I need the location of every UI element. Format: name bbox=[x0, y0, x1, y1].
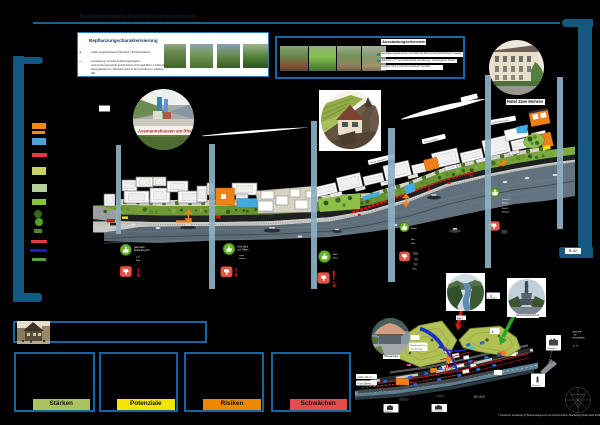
svg-text:Wanderweg Tief.: Wanderweg Tief. bbox=[410, 344, 427, 347]
svg-text:Burg: Burg bbox=[333, 256, 338, 259]
svg-text:Fund (Brett) →: Fund (Brett) → bbox=[358, 382, 376, 386]
svg-text:Loreleyblick: Loreleyblick bbox=[487, 297, 497, 300]
svg-text:· IM ·: · IM · bbox=[573, 335, 578, 337]
svg-text:BH 600: BH 600 bbox=[474, 395, 485, 399]
svg-text:Bingen: Bingen bbox=[502, 202, 510, 204]
svg-text:Pkw: Pkw bbox=[136, 260, 141, 262]
svg-text:Bahnhof: Bahnhof bbox=[385, 411, 393, 413]
svg-text:Halt: Halt bbox=[411, 242, 415, 245]
svg-text:Bus: Bus bbox=[411, 239, 416, 241]
svg-text:k. B: k. B bbox=[136, 257, 140, 259]
svg-text:a.d. Rhein: a.d. Rhein bbox=[238, 249, 250, 252]
svg-text:Weg: Weg bbox=[413, 269, 417, 271]
svg-text:····: ···· bbox=[574, 341, 578, 344]
svg-text:Fähre n.: Fähre n. bbox=[502, 198, 511, 201]
svg-text:▲: ▲ bbox=[491, 330, 494, 334]
svg-text:Blick: Blick bbox=[333, 254, 339, 256]
svg-text:Fähre: Fähre bbox=[411, 227, 417, 230]
svg-text:Ehrenfels: Ehrenfels bbox=[548, 347, 557, 350]
svg-text:Hafen 30 mi →: Hafen 30 mi → bbox=[358, 375, 376, 379]
svg-text:Mäuseturm: Mäuseturm bbox=[532, 384, 542, 387]
svg-text:/ Zauberweg: / Zauberweg bbox=[410, 348, 423, 351]
svg-text:Anleger: Anleger bbox=[502, 210, 510, 213]
svg-text:ATELIER: ATELIER bbox=[573, 331, 582, 334]
svg-text:Anbindung Ort: Anbindung Ort bbox=[134, 249, 150, 252]
svg-text:A · N: A · N bbox=[573, 345, 578, 348]
svg-text:BW I: BW I bbox=[457, 316, 463, 320]
svg-text:Güterschuppen: Güterschuppen bbox=[432, 410, 444, 413]
svg-text:Assmannshausen am Rhein: Assmannshausen am Rhein bbox=[138, 129, 194, 134]
svg-text:Gastro: Gastro bbox=[239, 257, 246, 260]
svg-text:NETZWERK: NETZWERK bbox=[573, 338, 586, 340]
svg-text:Schiff: Schiff bbox=[502, 208, 508, 210]
svg-text:Lage: Lage bbox=[239, 255, 245, 257]
